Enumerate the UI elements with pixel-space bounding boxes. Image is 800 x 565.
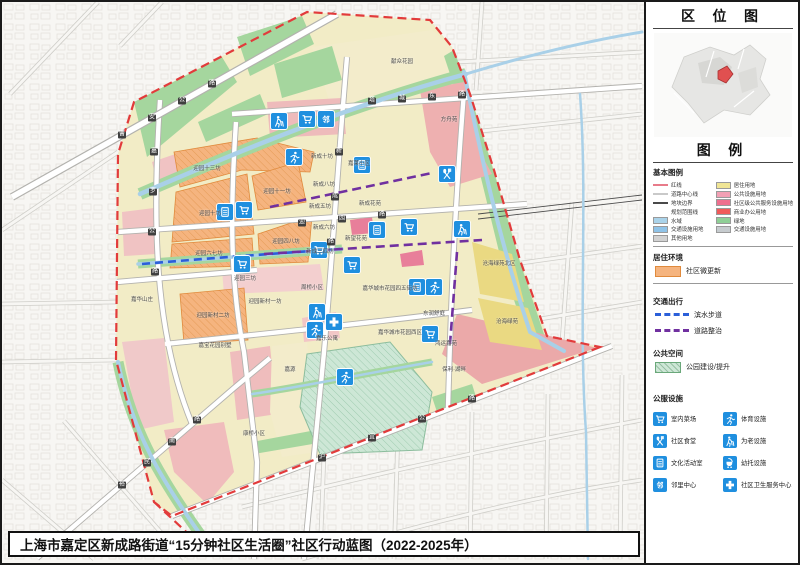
cart-icon xyxy=(653,412,667,426)
parcel-label: 嘉宝花园别墅 xyxy=(198,343,231,349)
parcel-label: 嘉华山庄 xyxy=(131,297,153,303)
legend-item-label: 道路整治 xyxy=(694,326,722,336)
blueprint-sheet: 邻 xyxy=(0,0,800,565)
legend-swatch xyxy=(716,182,731,189)
parcel-label: 迎园十三坊 xyxy=(193,166,221,172)
cart-icon xyxy=(236,202,253,219)
facilities-legend: 室内菜场体育设施社区食堂为老设施文化活动室幼托设施邻里中心社区卫生服务中心 xyxy=(653,412,793,492)
facility-legend-label: 社区卫生服务中心 xyxy=(741,480,791,489)
facility-legend-label: 邻里中心 xyxy=(671,480,696,489)
legend-swatch xyxy=(653,193,668,195)
legend-swatch xyxy=(655,362,681,373)
facility-legend-item: 邻里中心 xyxy=(653,478,723,492)
facilities-heading: 公服设施 xyxy=(653,393,793,404)
legend-item: 滨水步道 xyxy=(655,310,793,320)
base-legend-heading: 基本图例 xyxy=(653,167,793,178)
elder-icon xyxy=(271,113,288,130)
road-name-chip: 东 xyxy=(428,94,436,101)
road-name-chip: 嘉 xyxy=(150,149,158,156)
base-legend: 红线道路中心线地块边界规划范围线水域交通设施用地其他用地 居住用地公共设施用地社… xyxy=(653,181,793,243)
legend-panel: 区 位 图 图 例 基本图例 红线道路中心线地块边界规划范围线水域交通设施用地其… xyxy=(644,2,800,563)
road-name-chip: 民 xyxy=(143,460,151,467)
legend-item: 其他用地 xyxy=(653,234,713,243)
legend-item: 水域 xyxy=(653,216,713,225)
legend-swatch xyxy=(653,226,668,233)
legend-item-label: 社区级公共服务设施用地 xyxy=(734,199,793,207)
canteen-icon xyxy=(653,434,667,448)
parcel-label: 嘉乐公寓 xyxy=(316,336,338,342)
facility-legend-label: 幼托设施 xyxy=(741,458,766,467)
legend-item-label: 公园建设/提升 xyxy=(686,362,730,372)
facility-legend-item: 社区食堂 xyxy=(653,434,723,448)
canteen-icon xyxy=(439,166,456,183)
road-name-chip: 安 xyxy=(148,115,156,122)
road-name-chip: 路 xyxy=(458,92,466,99)
legend-item-label: 道路中心线 xyxy=(671,190,698,198)
legend-item-label: 其他用地 xyxy=(671,234,693,242)
road-name-chip: 路 xyxy=(378,212,386,219)
legend-item: 公共设施用地 xyxy=(716,190,793,199)
parcel-label: 沧海绿苑 xyxy=(496,319,518,325)
parcel-label: 嘉华城市花园西区 xyxy=(378,330,422,336)
road-name-chip: 迎 xyxy=(298,220,306,227)
parcel-label: 新成十坊 xyxy=(311,154,333,160)
road-name-chip: 曹 xyxy=(118,132,126,139)
section-heading: 公共空间 xyxy=(653,348,793,359)
legend-item-label: 公共设施用地 xyxy=(734,190,766,198)
legend-item: 红线 xyxy=(653,181,713,190)
legend-swatch xyxy=(655,313,689,316)
cart-icon xyxy=(422,326,439,343)
legend-item-label: 商业办公用地 xyxy=(734,208,766,216)
section-heading: 居住环境 xyxy=(653,252,793,263)
parcel-label: 迎园新村一坊 xyxy=(248,299,281,305)
legend-swatch xyxy=(653,235,668,242)
legend-item-label: 交通设施用地 xyxy=(734,225,766,233)
parcel-label: 康桥小区 xyxy=(243,431,265,437)
section-heading: 交通出行 xyxy=(653,296,793,307)
facility-legend-label: 文化活动室 xyxy=(671,458,702,467)
parcel-label: 嘉莱小区 xyxy=(348,161,370,167)
road-name-chip: 宜 xyxy=(368,435,376,442)
facility-legend-item: 体育设施 xyxy=(723,412,793,426)
legend-item: 商业办公用地 xyxy=(716,207,793,216)
legend-title: 图 例 xyxy=(653,139,793,163)
legend-item: 交通设施用地 xyxy=(716,225,793,234)
legend-swatch xyxy=(716,199,731,206)
facility-legend-item: 文化活动室 xyxy=(653,456,723,470)
legend-swatch xyxy=(716,217,731,224)
road-name-chip: 沪 xyxy=(318,455,326,462)
parcel-label: 迎园六七坊 xyxy=(195,251,223,257)
legend-item-label: 社区微更新 xyxy=(686,266,721,276)
parcel-label: 嘉源 xyxy=(284,367,295,373)
legend-item-label: 地块边界 xyxy=(671,199,693,207)
parcel-label: 保利·湖畔 xyxy=(442,367,466,373)
location-map-title: 区 位 图 xyxy=(653,5,793,29)
legend-item-label: 居住用地 xyxy=(734,181,756,189)
elder-icon xyxy=(454,221,471,238)
parcel-label: 新望花苑 xyxy=(345,236,367,242)
parcel-label: 迎园十坊 xyxy=(199,211,221,217)
legend-item: 公园建设/提升 xyxy=(655,362,793,373)
parcel-label: 嘉华城市花园四五街坊 xyxy=(362,286,417,292)
legend-item-label: 交通设施用地 xyxy=(671,225,703,233)
neighbor-icon xyxy=(653,478,667,492)
parcel-label: 迎园四八坊 xyxy=(272,239,300,245)
legend-item-label: 规划范围线 xyxy=(671,208,698,216)
legend-item-label: 绿地 xyxy=(734,217,745,225)
culture-icon xyxy=(369,222,386,239)
legend-item: 地块边界 xyxy=(653,199,713,208)
legend-item: 绿地 xyxy=(716,216,793,225)
neighbor-icon xyxy=(318,111,335,128)
parcel-label: 新成八坊 xyxy=(313,182,335,188)
planning-map: 邻 xyxy=(2,2,644,563)
road-name-chip: 城 xyxy=(398,96,406,103)
sport-icon xyxy=(337,369,354,386)
road-name-chip: 路 xyxy=(208,81,216,88)
cart-icon xyxy=(401,219,418,236)
legend-item-label: 红线 xyxy=(671,181,682,189)
legend-item: 道路整治 xyxy=(655,326,793,336)
legend-item: 道路中心线 xyxy=(653,190,713,199)
legend-swatch xyxy=(716,208,731,215)
cart-icon xyxy=(299,111,316,128)
legend-swatch xyxy=(653,184,668,186)
legend-swatch xyxy=(716,226,731,233)
facility-legend-item: 为老设施 xyxy=(723,434,793,448)
sport-icon xyxy=(426,279,443,296)
sheet-title: 上海市嘉定区新成路街道“15分钟社区生活圈”社区行动蓝图（2022-2025年） xyxy=(20,534,478,554)
legend-swatch xyxy=(653,217,668,224)
stroller-icon xyxy=(723,456,737,470)
culture-icon xyxy=(653,456,667,470)
legend-swatch xyxy=(655,266,681,277)
road-name-chip: 公 xyxy=(418,416,426,423)
parcel-label: 东润舒庭 xyxy=(423,311,445,317)
facility-legend-label: 体育设施 xyxy=(741,414,766,423)
facility-legend-item: 社区卫生服务中心 xyxy=(723,478,793,492)
parcel-label: 鸿运嘉苑 xyxy=(435,341,457,347)
sheet-title-bar: 上海市嘉定区新成路街道“15分钟社区生活圈”社区行动蓝图（2022-2025年） xyxy=(8,531,640,557)
legend-item: 居住用地 xyxy=(716,181,793,190)
road-name-chip: 路 xyxy=(468,396,476,403)
parcel-label: 献众花园 xyxy=(391,59,413,65)
road-name-chip: 新 xyxy=(335,149,343,156)
legend-item: 规划范围线 xyxy=(653,207,713,216)
parcel-label: 新成三四坊 xyxy=(306,249,334,255)
facility-legend-label: 社区食堂 xyxy=(671,436,696,445)
cart-icon xyxy=(234,256,251,273)
parcel-label: 迎园十一坊 xyxy=(263,189,291,195)
health-icon xyxy=(723,478,737,492)
road-name-chip: 公 xyxy=(148,229,156,236)
road-name-chip: 公 xyxy=(178,98,186,105)
facility-legend-item: 幼托设施 xyxy=(723,456,793,470)
cart-icon xyxy=(344,257,361,274)
road-name-chip: 园 xyxy=(338,216,346,223)
legend-item: 交通设施用地 xyxy=(653,225,713,234)
legend-item-label: 水域 xyxy=(671,217,682,225)
road-name-chip: 路 xyxy=(151,269,159,276)
road-name-chip: 成 xyxy=(331,194,339,201)
parcel-label: 迎园三坊 xyxy=(234,276,256,282)
road-name-chip: 南 xyxy=(168,439,176,446)
legend-item-label: 滨水步道 xyxy=(694,310,722,320)
road-name-chip: 路 xyxy=(327,239,335,246)
legend-swatch xyxy=(653,202,668,204)
parcel-label: 沧海绿苑北区 xyxy=(482,261,515,267)
facility-legend-item: 室内菜场 xyxy=(653,412,723,426)
facility-legend-label: 室内菜场 xyxy=(671,414,696,423)
legend-swatch xyxy=(655,329,689,332)
legend-item: 社区微更新 xyxy=(655,266,793,277)
elder-icon xyxy=(309,304,326,321)
road-name-chip: 塔 xyxy=(368,98,376,105)
legend-item: 社区级公共服务设施用地 xyxy=(716,199,793,208)
parcel-label: 新成花苑 xyxy=(359,201,381,207)
health-icon xyxy=(326,314,343,331)
parcel-label: 新成五坊 xyxy=(309,204,331,210)
map-canvas: 邻 xyxy=(2,2,644,563)
sport-icon xyxy=(286,149,303,166)
road-name-chip: 罗 xyxy=(149,189,157,196)
facility-legend-label: 为老设施 xyxy=(741,436,766,445)
elder-icon xyxy=(723,434,737,448)
road-name-chip: 路 xyxy=(193,417,201,424)
legend-swatch xyxy=(716,191,731,198)
parcel-label: 方舟苑 xyxy=(441,117,458,123)
parcel-label: 周桥小区 xyxy=(301,285,323,291)
parcel-label: 迎园新村二坊 xyxy=(196,313,229,319)
location-map xyxy=(654,33,792,137)
sport-icon xyxy=(723,412,737,426)
parcel-label: 新成六坊 xyxy=(313,225,335,231)
road-name-chip: 裕 xyxy=(118,482,126,489)
